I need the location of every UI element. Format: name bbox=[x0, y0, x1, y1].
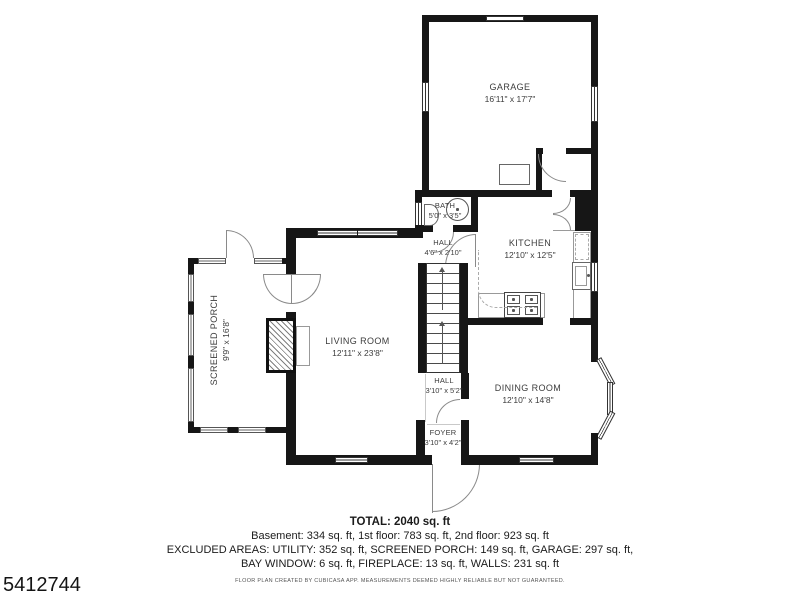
living-window-bottom bbox=[335, 457, 368, 463]
stair-arrow-up-1 bbox=[442, 272, 443, 310]
dining-room-dims: 12'10" x 14'8" bbox=[468, 395, 588, 406]
porch-post bbox=[188, 258, 194, 274]
kitchen-door-panel bbox=[475, 234, 476, 267]
foyer-name: FOYER bbox=[414, 428, 472, 438]
floor-areas: Basement: 334 sq. ft, 1st floor: 783 sq.… bbox=[0, 530, 800, 542]
living-window-top-mullion bbox=[357, 230, 358, 236]
stair-arrowhead-1 bbox=[439, 267, 445, 272]
garage-label: GARAGE 16'11" x 17'7" bbox=[455, 82, 565, 105]
closet-wall-block bbox=[575, 197, 591, 231]
bath-dims: 5'0" x 3'5" bbox=[419, 211, 471, 221]
living-room-label: LIVING ROOM 12'11" x 23'8" bbox=[300, 336, 415, 359]
middle-wall-top-b bbox=[570, 190, 598, 197]
fireplace bbox=[266, 318, 296, 373]
kitchen-sink-basin bbox=[575, 266, 587, 286]
bay-window-angled-bottom bbox=[596, 411, 615, 440]
disclaimer: FLOOR PLAN CREATED BY CUBICASA APP. MEAS… bbox=[0, 578, 800, 584]
porch-post bbox=[188, 356, 194, 368]
dining-window-bottom bbox=[519, 457, 554, 463]
closet-bifold-top bbox=[553, 198, 571, 214]
hall-dining-door-arc bbox=[436, 399, 460, 423]
total-area: TOTAL: 2040 sq. ft bbox=[0, 516, 800, 528]
front-door-panel bbox=[432, 464, 433, 513]
porch-screen bbox=[238, 427, 266, 433]
staircase bbox=[426, 263, 460, 373]
porch-french-door-divider bbox=[291, 274, 292, 303]
porch-screen bbox=[188, 368, 194, 422]
lower-hall-name: HALL bbox=[414, 376, 474, 386]
porch-screen-door-arc bbox=[226, 230, 254, 258]
kitchen-wall-bottom-a bbox=[460, 318, 543, 325]
porch-post bbox=[188, 427, 200, 433]
area-summary: TOTAL: 2040 sq. ft Basement: 334 sq. ft,… bbox=[0, 516, 800, 584]
stair-arrow-up-2 bbox=[442, 326, 443, 364]
kitchen-label: KITCHEN 12'10" x 12'5" bbox=[478, 238, 582, 261]
lower-hall-label: HALL 3'10" x 5'2" bbox=[414, 376, 474, 396]
floor-plan-page: GARAGE 16'11" x 17'7" BATH 5'0" x 3'5" H… bbox=[0, 0, 800, 600]
bath-name: BATH bbox=[419, 201, 471, 211]
listing-id-watermark: 5412744 bbox=[3, 574, 81, 597]
upper-hall-label: HALL 4'6" x 2'10" bbox=[414, 238, 472, 258]
bath-label: BATH 5'0" x 3'5" bbox=[419, 201, 471, 221]
living-wall-left-c bbox=[286, 373, 296, 465]
kitchen-window bbox=[591, 262, 598, 292]
upper-hall-name: HALL bbox=[414, 238, 472, 248]
middle-wall-top-a bbox=[415, 190, 552, 197]
closet-line bbox=[553, 230, 575, 231]
living-wall-left-a bbox=[286, 238, 296, 275]
garage-door-arc bbox=[538, 154, 566, 182]
porch-post bbox=[282, 258, 290, 264]
foyer-threshold bbox=[427, 424, 460, 425]
living-room-dims: 12'11" x 23'8" bbox=[300, 348, 415, 359]
garage-window-left bbox=[422, 82, 429, 112]
garage-name: GARAGE bbox=[455, 82, 565, 94]
bath-wall-bottom-b bbox=[453, 225, 478, 232]
screened-porch-label: SCREENED PORCH 9'9" x 16'8" bbox=[209, 285, 235, 395]
porch-screen bbox=[254, 258, 284, 264]
kitchen-name: KITCHEN bbox=[478, 238, 582, 250]
porch-post bbox=[188, 302, 194, 314]
garage-window-right bbox=[591, 86, 598, 122]
stair-arrowhead-2 bbox=[439, 321, 445, 326]
foyer-dims: 3'10" x 4'2" bbox=[414, 438, 472, 448]
porch-screen bbox=[198, 258, 226, 264]
porch-screen-door-panel bbox=[226, 230, 227, 258]
porch-screen bbox=[188, 314, 194, 356]
screened-porch-dims: 9'9" x 16'8" bbox=[221, 285, 232, 395]
porch-post bbox=[266, 427, 292, 433]
garage-storage-box bbox=[499, 164, 530, 185]
garage-window-top bbox=[486, 16, 524, 21]
porch-screen bbox=[188, 274, 194, 302]
excluded-areas-line1: EXCLUDED AREAS: UTILITY: 352 sq. ft, SCR… bbox=[0, 544, 800, 556]
upper-hall-dims: 4'6" x 2'10" bbox=[414, 248, 472, 258]
garage-interior-wall-h2 bbox=[566, 148, 598, 154]
stair-wall-left bbox=[418, 263, 426, 373]
porch-french-door-arc bbox=[263, 274, 321, 304]
kitchen-wall-bottom-b bbox=[570, 318, 598, 325]
kitchen-dims: 12'10" x 12'5" bbox=[478, 250, 582, 261]
screened-porch-name: SCREENED PORCH bbox=[209, 285, 221, 395]
dining-room-name: DINING ROOM bbox=[468, 383, 588, 395]
living-room-name: LIVING ROOM bbox=[300, 336, 415, 348]
closet-bifold-bottom bbox=[553, 214, 571, 230]
porch-post bbox=[228, 427, 238, 433]
excluded-areas-line2: BAY WINDOW: 6 sq. ft, FIREPLACE: 13 sq. … bbox=[0, 558, 800, 570]
front-door-arc bbox=[432, 464, 480, 512]
dining-room-label: DINING ROOM 12'10" x 14'8" bbox=[468, 383, 588, 406]
lower-hall-dims: 3'10" x 5'2" bbox=[414, 386, 474, 396]
garage-dims: 16'11" x 17'7" bbox=[455, 94, 565, 105]
kitchen-faucet bbox=[587, 274, 590, 277]
foyer-label: FOYER 3'10" x 4'2" bbox=[414, 428, 472, 448]
porch-screen bbox=[200, 427, 228, 433]
